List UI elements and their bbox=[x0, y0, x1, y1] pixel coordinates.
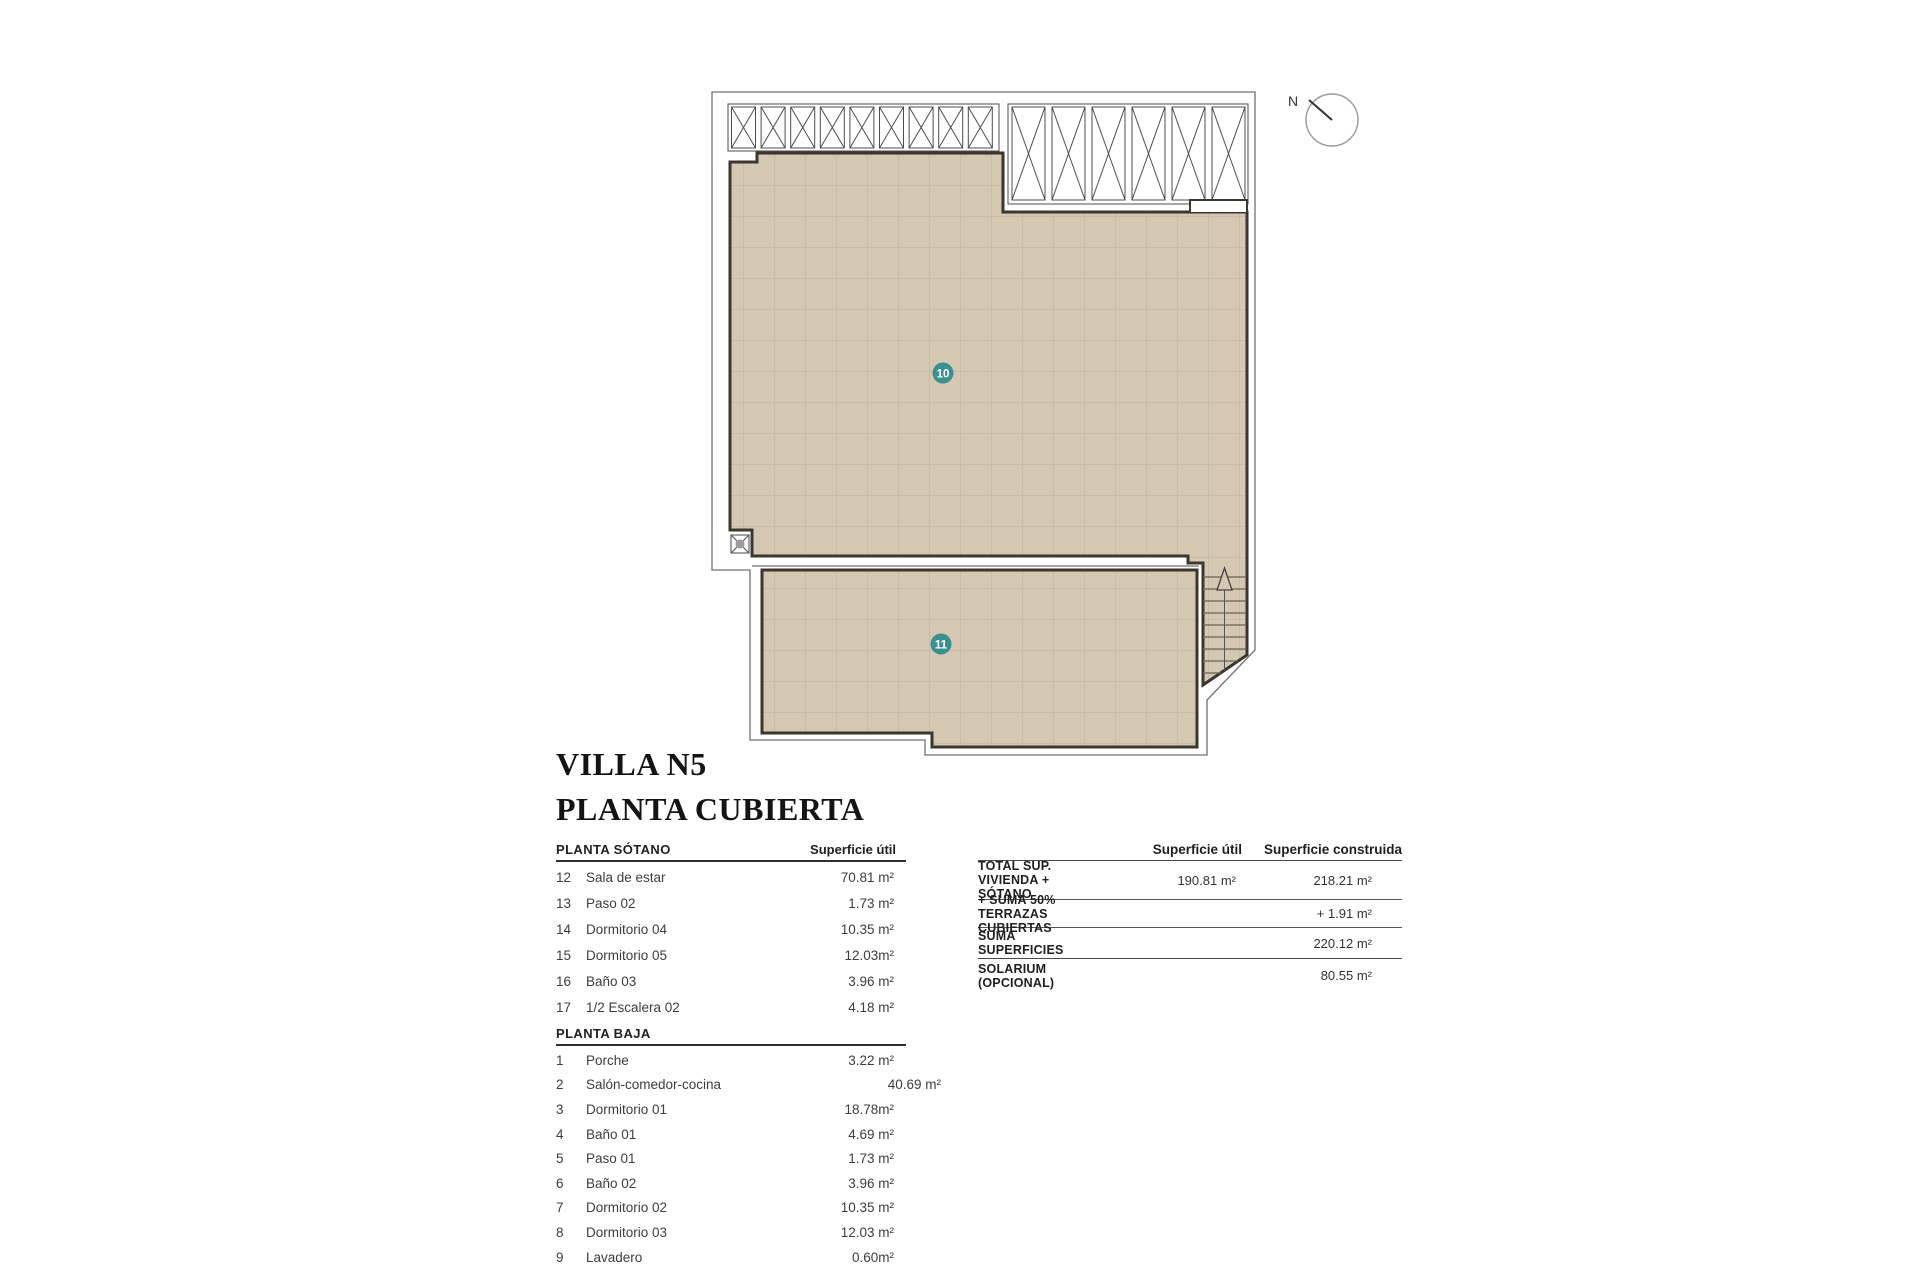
summary-construida-value: 220.12 m² bbox=[1242, 936, 1402, 951]
room-area: 0.60m² bbox=[852, 1250, 906, 1265]
room-number: 2 bbox=[556, 1077, 586, 1092]
room-number: 16 bbox=[556, 974, 586, 989]
table-row: 16 Baño 03 3.96 m² bbox=[556, 968, 906, 994]
room-area: 1.73 m² bbox=[848, 1151, 906, 1166]
room-area: 12.03m² bbox=[844, 948, 906, 963]
room-number: 4 bbox=[556, 1127, 586, 1142]
room-number: 12 bbox=[556, 870, 586, 885]
room-name: Lavadero bbox=[586, 1250, 852, 1265]
summary-construida-value: + 1.91 m² bbox=[1242, 906, 1402, 921]
room-area: 10.35 m² bbox=[841, 1200, 906, 1215]
summary-row-suma: SUMA SUPERFICIES 220.12 m² bbox=[978, 928, 1402, 959]
room-name: Baño 02 bbox=[586, 1176, 848, 1191]
page-title: VILLA N5 PLANTA CUBIERTA bbox=[556, 742, 864, 832]
section-header-sotano: PLANTA SÓTANO Superficie útil bbox=[556, 842, 906, 862]
summary-util-value: 190.81 m² bbox=[1097, 873, 1242, 888]
room-area: 18.78m² bbox=[844, 1102, 906, 1117]
room-area: 40.69 m² bbox=[888, 1077, 953, 1092]
rooms-table: PLANTA SÓTANO Superficie útil 12 Sala de… bbox=[556, 842, 906, 1269]
room-area: 4.18 m² bbox=[848, 1000, 906, 1015]
section-heading: PLANTA SÓTANO bbox=[556, 842, 671, 857]
table-row: 7 Dormitorio 02 10.35 m² bbox=[556, 1196, 906, 1221]
room-name: Baño 01 bbox=[586, 1127, 848, 1142]
table-row: 14 Dormitorio 04 10.35 m² bbox=[556, 916, 906, 942]
room-name: Paso 02 bbox=[586, 896, 848, 911]
table-row: 3 Dormitorio 01 18.78m² bbox=[556, 1097, 906, 1122]
section-heading: PLANTA BAJA bbox=[556, 1026, 651, 1041]
room-area: 3.96 m² bbox=[848, 974, 906, 989]
column-header-superficie-util: Superficie útil bbox=[810, 842, 906, 857]
title-floor: PLANTA CUBIERTA bbox=[556, 787, 864, 832]
title-villa: VILLA N5 bbox=[556, 742, 864, 787]
room-number: 8 bbox=[556, 1225, 586, 1240]
column-header-superficie-construida: Superficie construida bbox=[1242, 842, 1402, 857]
room-number: 17 bbox=[556, 1000, 586, 1015]
room-name: Dormitorio 01 bbox=[586, 1102, 844, 1117]
pergola-right-icon bbox=[1008, 104, 1248, 204]
terrace-11-area bbox=[762, 570, 1197, 747]
summary-header: Superficie útil Superficie construida bbox=[978, 838, 1402, 861]
room-area: 3.96 m² bbox=[848, 1176, 906, 1191]
svg-text:11: 11 bbox=[935, 640, 948, 652]
table-row: 1 Porche 3.22 m² bbox=[556, 1048, 906, 1073]
summary-row-solarium: SOLARIUM (OPCIONAL) 80.55 m² bbox=[978, 959, 1402, 992]
table-row: 13 Paso 02 1.73 m² bbox=[556, 890, 906, 916]
room-area: 12.03 m² bbox=[841, 1225, 906, 1240]
room-number: 13 bbox=[556, 896, 586, 911]
room-number: 14 bbox=[556, 922, 586, 937]
room-name: 1/2 Escalera 02 bbox=[586, 1000, 848, 1015]
table-row: 17 1/2 Escalera 02 4.18 m² bbox=[556, 994, 906, 1020]
table-row: 9 Lavadero 0.60m² bbox=[556, 1245, 906, 1270]
room-name: Sala de estar bbox=[586, 870, 841, 885]
table-row: 5 Paso 01 1.73 m² bbox=[556, 1146, 906, 1171]
room-name: Dormitorio 04 bbox=[586, 922, 841, 937]
pergola-left-icon bbox=[728, 104, 999, 151]
room-number: 7 bbox=[556, 1200, 586, 1215]
baja-rows: 1 Porche 3.22 m² 2 Salón-comedor-cocina … bbox=[556, 1048, 906, 1269]
table-row: 4 Baño 01 4.69 m² bbox=[556, 1122, 906, 1147]
column-header-superficie-util: Superficie útil bbox=[1097, 842, 1242, 857]
drain-symbol-icon bbox=[731, 535, 749, 553]
room-area: 4.69 m² bbox=[848, 1127, 906, 1142]
table-row: 15 Dormitorio 05 12.03m² bbox=[556, 942, 906, 968]
section-header-baja: PLANTA BAJA bbox=[556, 1026, 906, 1046]
room-label-10: 10 bbox=[933, 363, 954, 384]
room-area: 70.81 m² bbox=[841, 870, 906, 885]
room-number: 5 bbox=[556, 1151, 586, 1166]
summary-construida-value: 218.21 m² bbox=[1242, 873, 1402, 888]
room-name: Salón-comedor-cocina bbox=[586, 1077, 888, 1092]
summary-construida-value: 80.55 m² bbox=[1242, 968, 1402, 983]
summary-row-terrazas: + SUMA 50% TERRAZAS CUBIERTAS + 1.91 m² bbox=[978, 900, 1402, 928]
room-number: 15 bbox=[556, 948, 586, 963]
room-name: Baño 03 bbox=[586, 974, 848, 989]
room-area: 10.35 m² bbox=[841, 922, 906, 937]
floor-plan-sheet: 10 11 N VILLA N5 PLANTA CUBIERTA PLANTA … bbox=[0, 0, 1920, 1280]
north-indicator-icon: N bbox=[1288, 93, 1358, 146]
table-row: 8 Dormitorio 03 12.03 m² bbox=[556, 1220, 906, 1245]
summary-table: Superficie útil Superficie construida TO… bbox=[978, 838, 1402, 992]
summary-label: SOLARIUM (OPCIONAL) bbox=[978, 962, 1097, 990]
room-name: Dormitorio 03 bbox=[586, 1225, 841, 1240]
table-row: 12 Sala de estar 70.81 m² bbox=[556, 864, 906, 890]
room-name: Dormitorio 02 bbox=[586, 1200, 841, 1215]
table-row: 6 Baño 02 3.96 m² bbox=[556, 1171, 906, 1196]
summary-label: SUMA SUPERFICIES bbox=[978, 929, 1097, 957]
sotano-rows: 12 Sala de estar 70.81 m² 13 Paso 02 1.7… bbox=[556, 864, 906, 1020]
room-label-11: 11 bbox=[931, 634, 952, 655]
room-name: Porche bbox=[586, 1053, 848, 1068]
room-number: 3 bbox=[556, 1102, 586, 1117]
svg-text:N: N bbox=[1288, 93, 1298, 109]
room-number: 9 bbox=[556, 1250, 586, 1265]
room-number: 6 bbox=[556, 1176, 586, 1191]
floor-plan-drawing: 10 11 N bbox=[0, 0, 1920, 1280]
room-name: Paso 01 bbox=[586, 1151, 848, 1166]
room-name: Dormitorio 05 bbox=[586, 948, 844, 963]
svg-text:10: 10 bbox=[937, 369, 950, 381]
table-row: 2 Salón-comedor-cocina 40.69 m² bbox=[556, 1073, 906, 1098]
parapet-step bbox=[1190, 200, 1247, 212]
room-area: 1.73 m² bbox=[848, 896, 906, 911]
room-area: 3.22 m² bbox=[848, 1053, 906, 1068]
room-number: 1 bbox=[556, 1053, 586, 1068]
